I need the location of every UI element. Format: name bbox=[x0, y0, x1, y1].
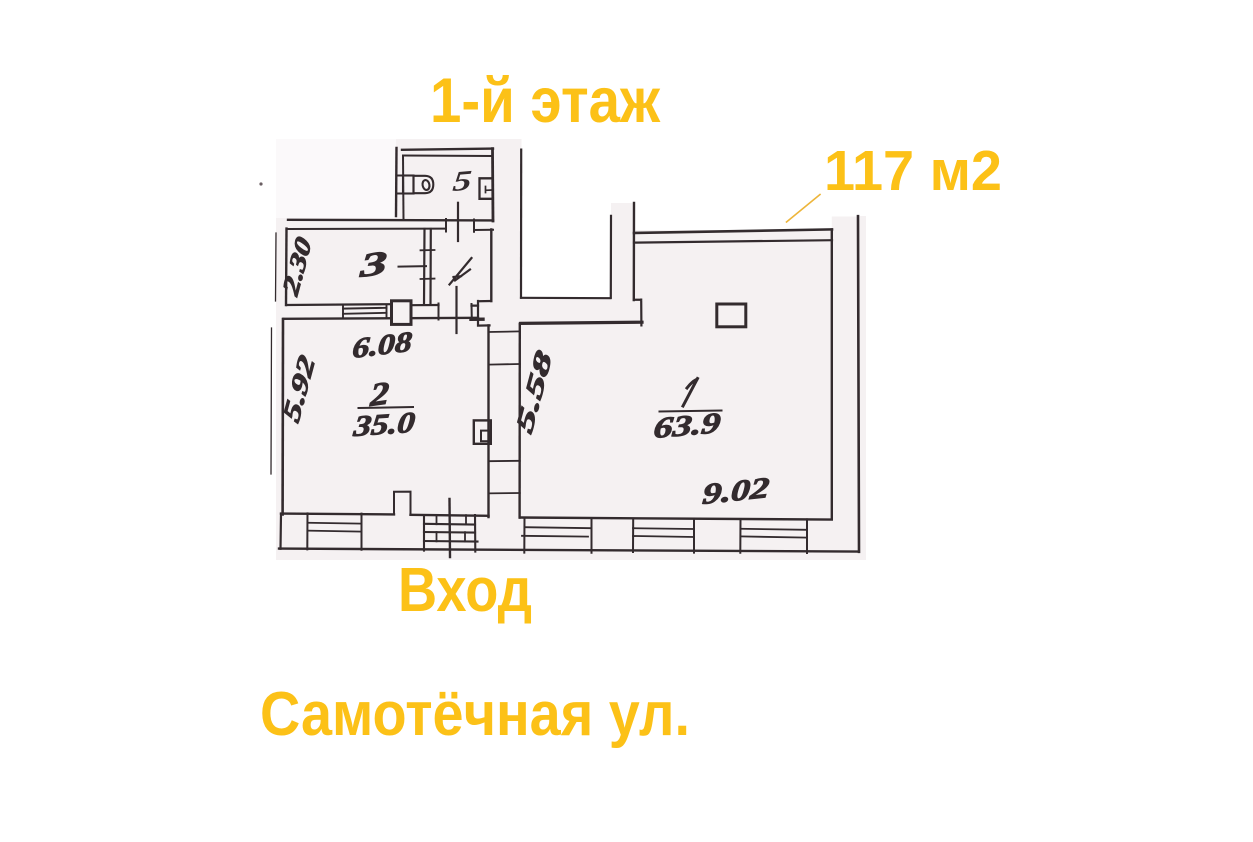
svg-text:Вход: Вход bbox=[398, 556, 532, 625]
svg-text:35.0: 35.0 bbox=[351, 407, 417, 443]
svg-text:63.9: 63.9 bbox=[652, 407, 722, 445]
svg-text:3: 3 bbox=[358, 244, 388, 285]
svg-text:Самотёчная ул.: Самотёчная ул. bbox=[260, 680, 690, 749]
svg-text:1-й этаж: 1-й этаж bbox=[430, 66, 661, 136]
svg-text:5: 5 bbox=[451, 165, 473, 198]
svg-text:117 м2: 117 м2 bbox=[824, 139, 1002, 203]
